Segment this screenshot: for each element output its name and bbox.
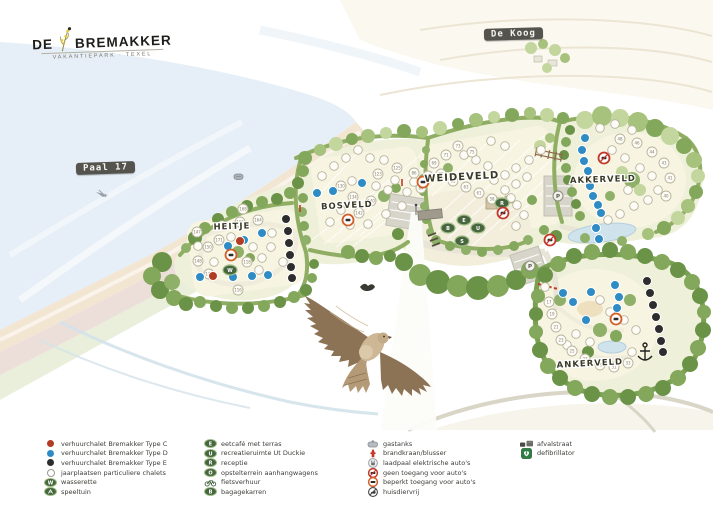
gas-tank-icon (234, 174, 243, 180)
area-label-heitje: HEITJE (213, 221, 250, 232)
svg-text:46: 46 (634, 141, 640, 146)
legend-item: beperkt toegang voor auto's (366, 477, 476, 487)
svg-text:116: 116 (234, 288, 242, 293)
legend-label: verhuurchalet Bremakker Type D (61, 449, 168, 457)
legend-label: afvalstraat (537, 440, 572, 448)
gastanks-icon (367, 439, 379, 448)
svg-text:P: P (556, 194, 560, 200)
bagagekarren-icon: B (204, 487, 217, 496)
type-c-dot-icon (47, 440, 54, 447)
legend-item: gastanks (366, 439, 476, 449)
legend-item: geen toegang voor auto's (366, 468, 476, 478)
type-d-dot-icon (47, 450, 54, 457)
svg-text:171: 171 (215, 238, 223, 243)
logo-word-de: DE (32, 37, 53, 53)
svg-text:43: 43 (661, 161, 667, 166)
legend-label: receptie (221, 459, 248, 467)
svg-text:44: 44 (649, 150, 655, 155)
beperkt-toegang-icon (367, 477, 379, 487)
speeltuin-icon (44, 487, 57, 496)
svg-text:125: 125 (393, 166, 401, 171)
legend-item: verhuurchalet Bremakker Type D (44, 449, 168, 459)
legend-label: recreatieruimte Ut Duckie (221, 449, 305, 457)
svg-text:123: 123 (374, 172, 382, 177)
legend-column-4: afvalstraat defibrillator (520, 439, 575, 458)
svg-text:86: 86 (411, 171, 417, 176)
fietsverhuur-icon (204, 478, 217, 487)
svg-text:142: 142 (355, 211, 363, 216)
legend-label: opstelterrein aanhangwagens (221, 469, 318, 477)
parking-badge: P (525, 261, 535, 271)
legend-label: wasserette (61, 478, 97, 486)
legend-label: defibrillator (537, 449, 575, 457)
legend-label: jaarplaatsen particuliere chalets (61, 469, 166, 477)
svg-text:E: E (209, 442, 213, 448)
huisdiervrij-icon (367, 487, 379, 497)
legend-label: verhuurchalet Bremakker Type E (61, 459, 167, 467)
opstelterrein-icon: O (204, 468, 217, 477)
svg-text:S: S (460, 239, 464, 245)
legend-label: bagagekarren (221, 488, 266, 496)
svg-text:19: 19 (549, 312, 555, 317)
legend-item: brandkraan/blusser (366, 449, 476, 459)
legend-item: laadpaal elektrische auto's (366, 458, 476, 468)
defibrillator-icon (521, 448, 532, 459)
svg-text:E: E (462, 218, 466, 224)
legend-item: huisdiervrij (366, 487, 476, 497)
svg-text:73: 73 (455, 144, 461, 149)
legend-item: U recreatieruimte Ut Duckie (204, 449, 318, 459)
svg-text:48: 48 (617, 137, 623, 142)
svg-text:69: 69 (431, 161, 437, 166)
no-entry-icon (545, 235, 556, 246)
svg-text:148: 148 (194, 259, 202, 264)
svg-text:33: 33 (625, 361, 631, 366)
eetcafe-icon: E (204, 439, 217, 448)
legend-column-1: verhuurchalet Bremakker Type C verhuurch… (44, 439, 168, 497)
svg-text:23: 23 (558, 338, 564, 343)
svg-text:168: 168 (239, 207, 247, 212)
svg-text:W: W (227, 268, 233, 274)
svg-text:U: U (208, 451, 212, 457)
svg-text:118: 118 (243, 260, 251, 265)
legend-item: fietsverhuur (204, 477, 318, 487)
ut-duckie-icon: U (204, 449, 217, 458)
limited-access-icon (611, 314, 622, 325)
svg-text:63: 63 (463, 185, 469, 190)
legend-column-2: E eetcafé met terras U recreatieruimte U… (204, 439, 318, 497)
svg-text:R: R (209, 461, 213, 467)
sign-de-koog: De Koog (484, 27, 543, 41)
svg-text:164: 164 (254, 218, 262, 223)
legend-item: R receptie (204, 458, 318, 468)
svg-text:B: B (209, 490, 213, 496)
legend-item: speeltuin (44, 487, 168, 497)
legend-label: speeltuin (61, 488, 91, 496)
legend-item: defibrillator (520, 449, 575, 459)
legend-label: geen toegang voor auto's (383, 469, 467, 477)
park-map-page: 147 166 164 150 148 168 118 116 171 172 … (0, 0, 713, 519)
svg-text:75: 75 (469, 150, 475, 155)
legend-column-3: gastanks brandkraan/blusser laadpaal ele… (366, 439, 476, 497)
svg-text:U: U (476, 226, 480, 232)
map-legend: verhuurchalet Bremakker Type C verhuurch… (0, 439, 713, 509)
legend-label: brandkraan/blusser (383, 449, 446, 457)
legend-item: E eetcafé met terras (204, 439, 318, 449)
legend-item: W wasserette (44, 477, 168, 487)
broom-sprig-icon (55, 27, 72, 52)
legend-item: verhuurchalet Bremakker Type C (44, 439, 168, 449)
legend-label: huisdiervrij (383, 488, 419, 496)
facility-badge-ut-duckie: U (471, 223, 485, 233)
svg-text:25: 25 (569, 349, 575, 354)
svg-text:R: R (500, 201, 504, 207)
svg-text:130: 130 (337, 184, 345, 189)
svg-text:58: 58 (489, 197, 495, 202)
facility-badge-receptie: R (495, 198, 509, 208)
type-e-dot-icon (47, 459, 54, 466)
legend-item: O opstelterrein aanhangwagens (204, 468, 318, 478)
svg-text:B: B (446, 226, 450, 232)
svg-text:41: 41 (667, 176, 673, 181)
legend-label: fietsverhuur (221, 478, 260, 486)
svg-text:134: 134 (349, 195, 357, 200)
legend-label: beperkt toegang voor auto's (383, 478, 476, 486)
svg-text:O: O (208, 470, 212, 476)
legend-item: jaarplaatsen particuliere chalets (44, 468, 168, 478)
laadpaal-icon (367, 458, 379, 468)
svg-text:61: 61 (476, 191, 482, 196)
wasserette-icon: W (44, 478, 57, 487)
facility-badge-bagagekarren: B (441, 223, 455, 233)
limited-access-icon (226, 250, 237, 261)
svg-text:71: 71 (443, 153, 449, 158)
park-logo: DE BREMAKKER VAKANTIEPARK · TEXEL (23, 23, 180, 61)
svg-text:P: P (528, 264, 532, 270)
legend-label: eetcafé met terras (221, 440, 282, 448)
parking-badge: P (553, 191, 563, 201)
sign-paal-17: Paal 17 (76, 161, 135, 175)
limited-access-icon (343, 215, 354, 226)
facility-badge-wasserette: W (223, 265, 237, 275)
legend-label: verhuurchalet Bremakker Type C (61, 440, 167, 448)
facility-badge-eetcafe: E (457, 215, 471, 225)
brandkraan-icon (367, 449, 379, 458)
svg-text:150: 150 (204, 245, 212, 250)
legend-item: verhuurchalet Bremakker Type E (44, 458, 168, 468)
geen-toegang-icon (367, 468, 379, 478)
no-entry-icon (599, 153, 610, 164)
legend-label: gastanks (383, 440, 412, 448)
legend-label: laadpaal elektrische auto's (383, 459, 470, 467)
svg-text:21: 21 (553, 325, 559, 330)
no-entry-icon (498, 208, 509, 219)
facility-badge-speeltuin: S (455, 236, 469, 246)
receptie-icon: R (204, 458, 217, 467)
svg-text:17: 17 (546, 300, 552, 305)
legend-item: B bagagekarren (204, 487, 318, 497)
svg-text:W: W (48, 480, 54, 486)
svg-text:40: 40 (663, 194, 669, 199)
svg-text:147: 147 (193, 230, 201, 235)
small-bird-icon (360, 284, 375, 291)
jaarplaats-circle-icon (47, 469, 55, 477)
